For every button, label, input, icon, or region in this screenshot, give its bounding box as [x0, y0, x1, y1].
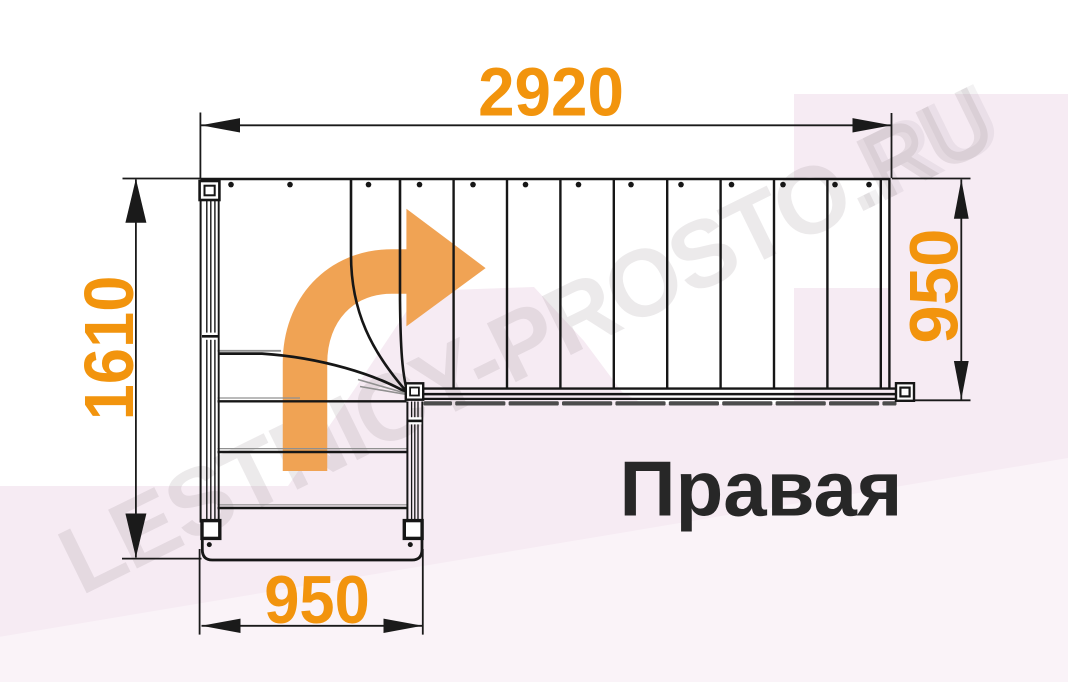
svg-text:1610: 1610	[71, 276, 149, 421]
svg-text:950: 950	[896, 228, 973, 343]
svg-text:Правая: Правая	[620, 445, 903, 533]
svg-text:950: 950	[264, 562, 370, 638]
svg-text:2920: 2920	[478, 54, 624, 131]
